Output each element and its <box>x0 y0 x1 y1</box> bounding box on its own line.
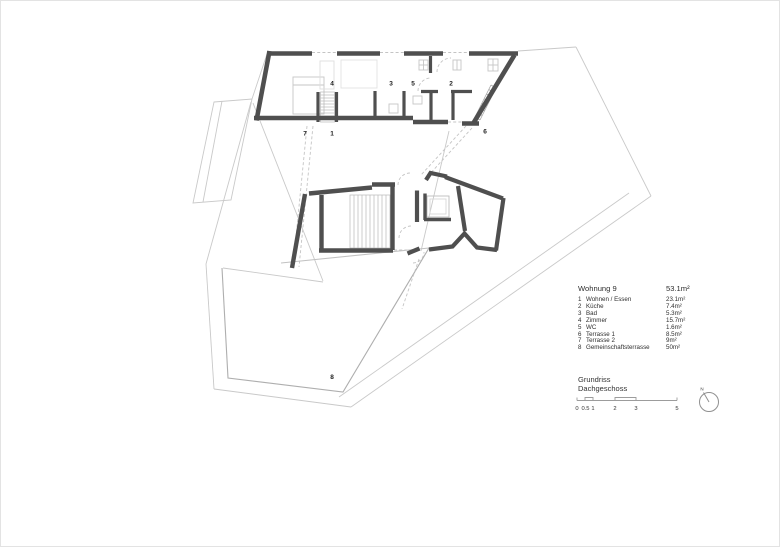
terrace-outline <box>222 248 429 392</box>
legend-row: 2Küche7.4m² <box>578 304 743 311</box>
north-arrow: N <box>700 387 719 412</box>
walls-upper <box>254 51 518 124</box>
room-label-1: 1 <box>330 131 334 138</box>
room-label-2: 2 <box>449 81 453 88</box>
drawing-subtitle: Dachgeschoss <box>578 384 627 393</box>
legend-label: Gemeinschaftsterrasse <box>586 344 650 351</box>
scale-tick-1: 1 <box>591 406 594 412</box>
scale-tick-0: 0 <box>575 406 578 412</box>
room-label-3: 3 <box>389 81 393 88</box>
walls-structure-interior <box>424 194 451 221</box>
stair-hatch-lower <box>350 195 390 248</box>
room-label-5: 5 <box>411 81 415 88</box>
room-label-7: 7 <box>303 131 307 138</box>
legend-num: 8 <box>578 345 586 352</box>
room-label-6: 6 <box>483 129 487 136</box>
floor-plan-canvas: 4 3 5 2 7 1 6 8 0 0.5 1 2 3 5 <box>1 1 780 547</box>
legend-items: 1Wohnen / Essen23.1m² 2Küche7.4m² 3Bad5.… <box>578 297 743 352</box>
dashed-lines <box>293 53 472 310</box>
room-label-4: 4 <box>330 81 334 88</box>
drawing-sheet: 4 3 5 2 7 1 6 8 0 0.5 1 2 3 5 <box>0 0 780 547</box>
north-needle <box>704 393 710 403</box>
drawing-title: Grundriss <box>578 375 627 384</box>
scale-tick-5: 5 <box>675 406 678 412</box>
scale-tick-05: 0.5 <box>581 406 589 412</box>
scale-tick-2: 2 <box>613 406 616 412</box>
legend-row: 4Zimmer15.7m² <box>578 318 743 325</box>
apartment-total-area: 53.1m² <box>666 284 690 293</box>
walls-lower <box>292 185 395 269</box>
apartment-title: Wohnung 9 <box>578 284 617 293</box>
title-block: Grundriss Dachgeschoss <box>578 375 627 393</box>
scale-numbers: 0 0.5 1 2 3 5 <box>575 406 678 412</box>
scale-tick-3: 3 <box>634 406 637 412</box>
scale-bar <box>577 398 677 401</box>
room-labels: 4 3 5 2 7 1 6 8 <box>303 81 487 382</box>
walls-structure <box>408 173 504 254</box>
legend-area: 50m² <box>666 345 680 352</box>
room-label-8: 8 <box>330 374 334 381</box>
legend: Wohnung 9 53.1m² 1Wohnen / Essen23.1m² 2… <box>578 284 743 352</box>
north-label: N <box>700 387 703 392</box>
legend-row: 8Gemeinschaftsterrasse50m² <box>578 345 743 352</box>
